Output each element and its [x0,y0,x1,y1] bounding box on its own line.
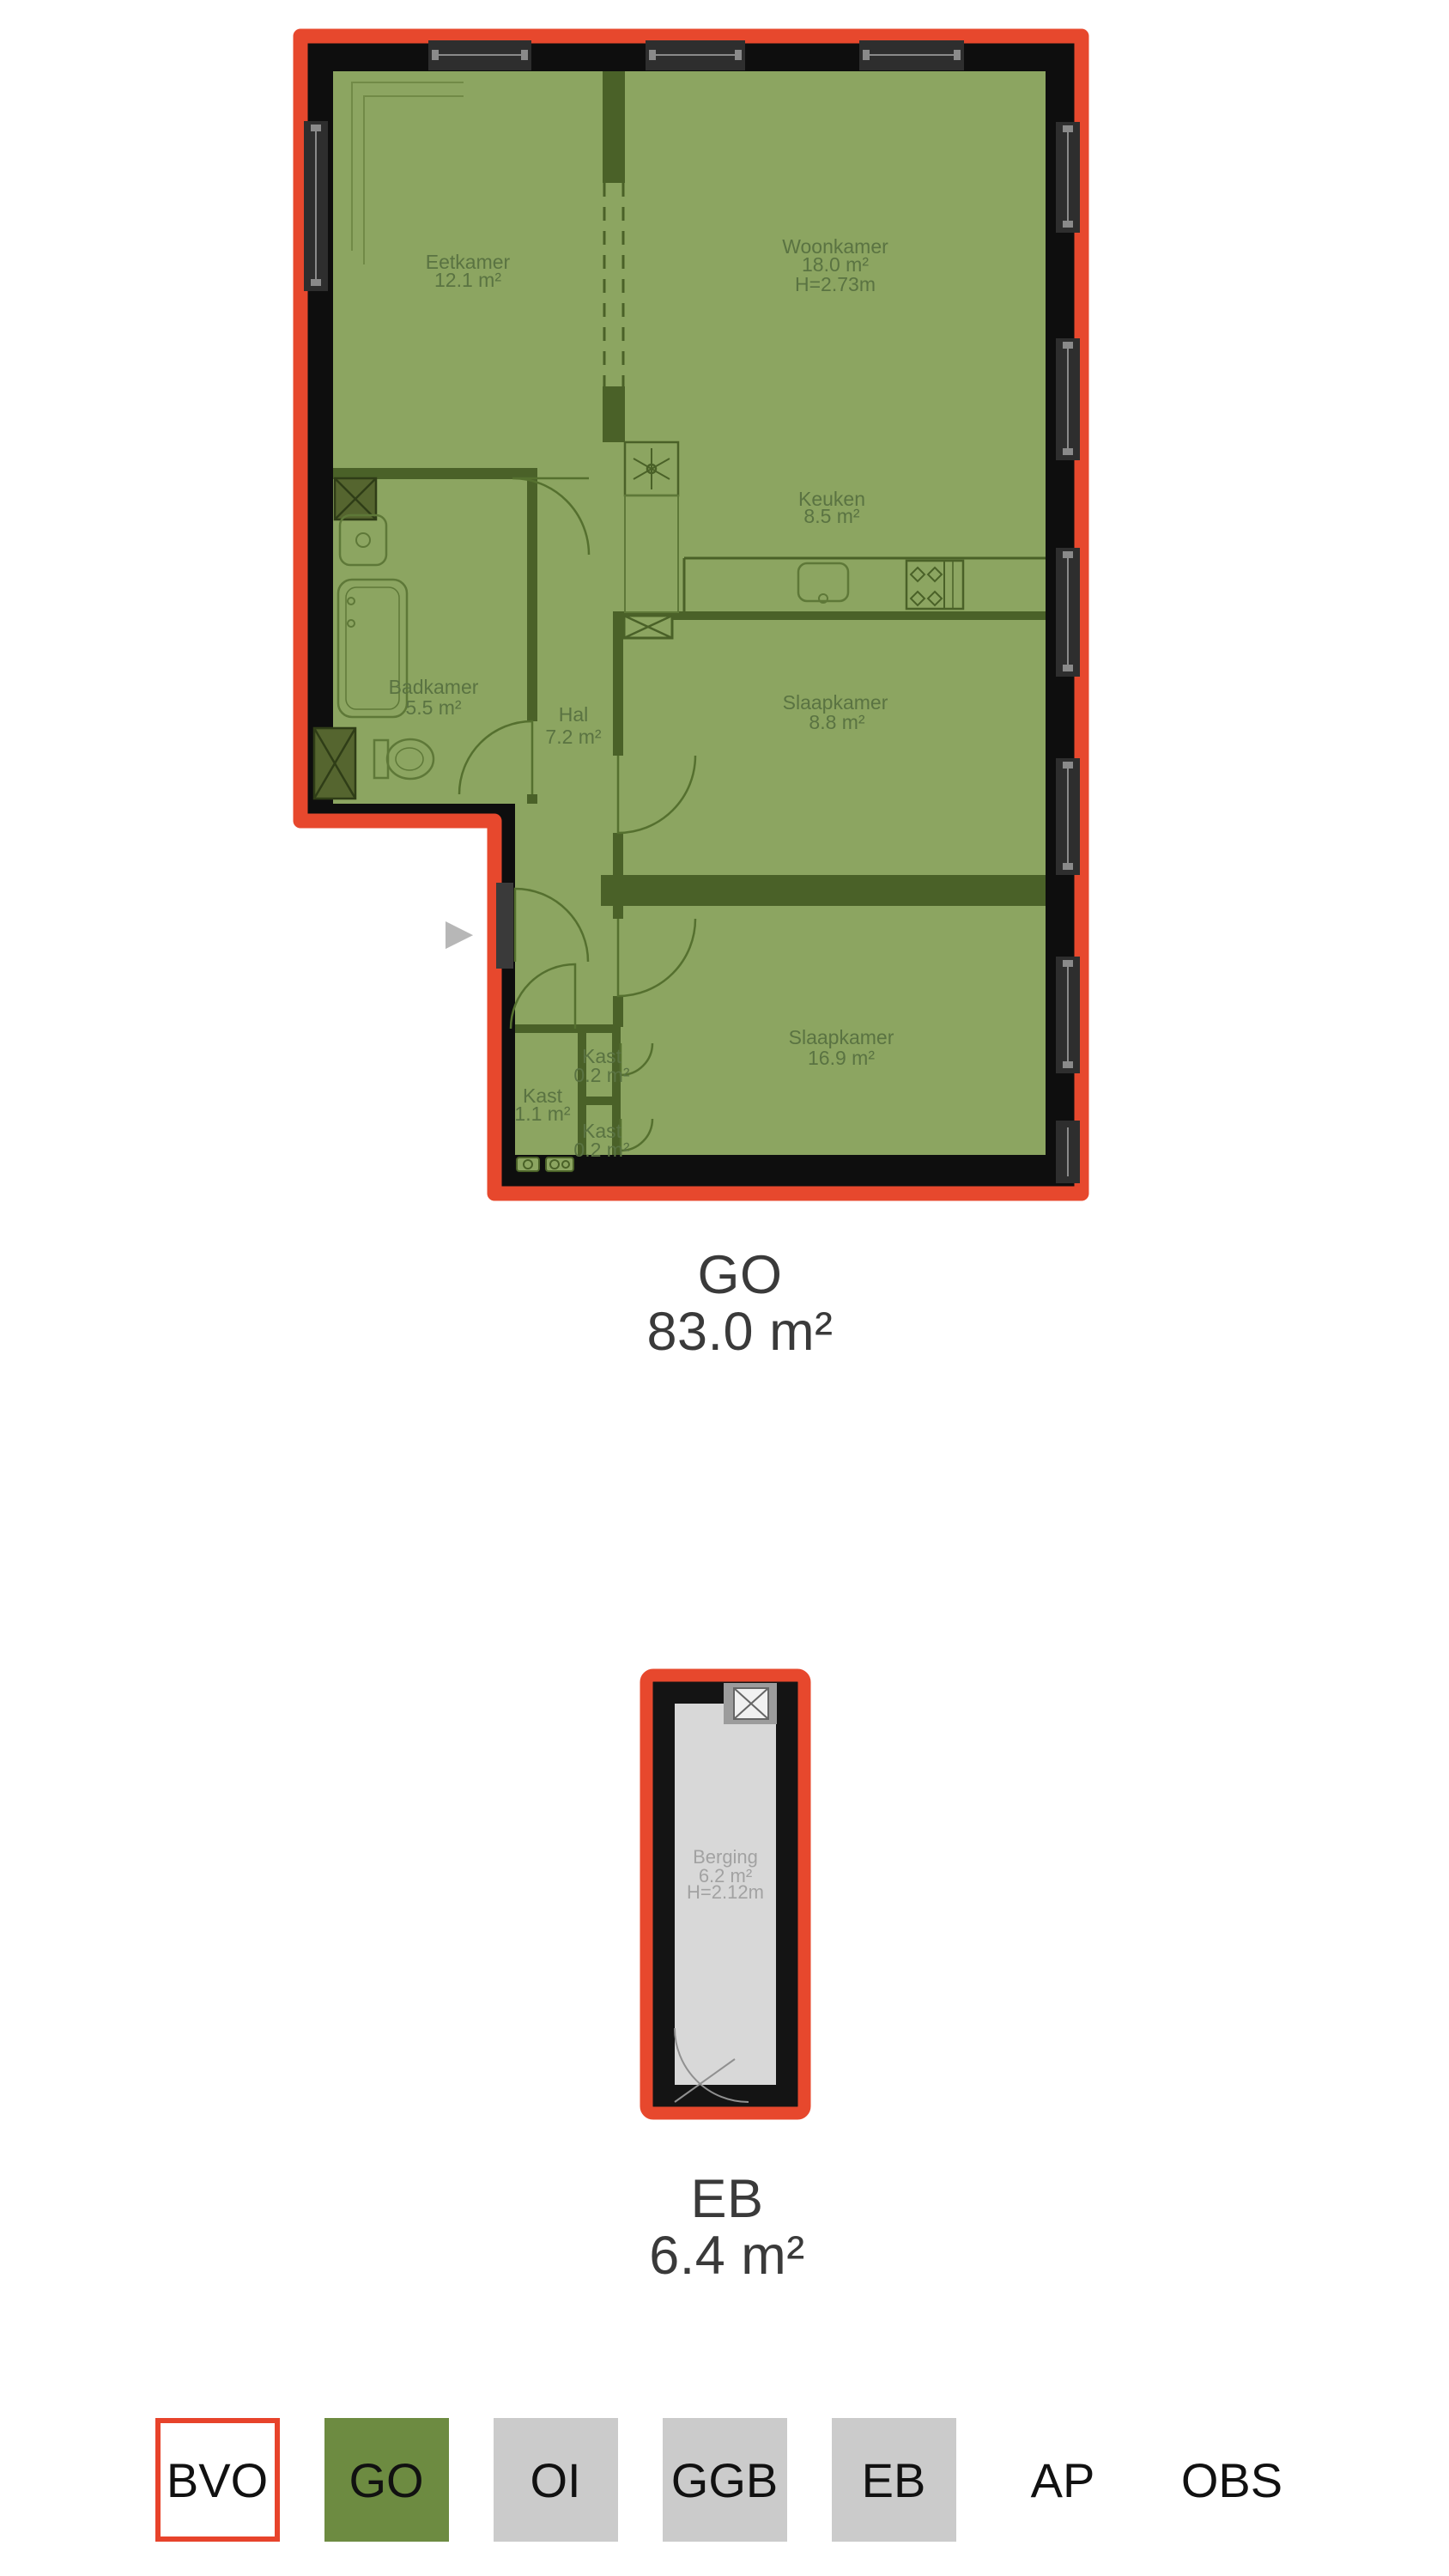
legend-item-oi[interactable]: OI [494,2418,618,2542]
shaft-keuken-icon [624,616,672,638]
caption-go: GO 83.0 m² [15,1247,1449,1360]
room-area-kast1: 1.1 m² [514,1103,571,1125]
room-area-slaapkamer1: 8.8 m² [809,711,865,733]
legend-item-obs[interactable]: OBS [1170,2418,1294,2542]
legend-item-ggb[interactable]: GGB [663,2418,787,2542]
room-label-slaapkamer2: Slaapkamer [789,1026,894,1048]
caption-go-code: GO [15,1247,1449,1303]
legend-bar: BVO GO OI GGB EB AP OBS [0,2418,1449,2542]
floorplan-go: Eetkamer 12.1 m² Woonkamer 18.0 m² H=2.7… [300,36,1082,1194]
caption-eb-code: EB [3,2171,1449,2227]
floorplans-canvas: Eetkamer 12.1 m² Woonkamer 18.0 m² H=2.7… [0,0,1449,2147]
room-label-hal: Hal [559,703,589,726]
room-area-slaapkamer2: 16.9 m² [808,1047,875,1069]
room-area-hal: 7.2 m² [545,726,602,748]
legend-item-go[interactable]: GO [324,2418,449,2542]
shaft-eetkamer-icon [335,478,376,519]
caption-go-area: 83.0 m² [15,1303,1449,1360]
legend-item-bvo[interactable]: BVO [155,2418,280,2542]
legend-item-eb[interactable]: EB [832,2418,956,2542]
carousel-next-button[interactable]: ▶ [433,907,485,958]
shaft-badkamer-icon [314,728,355,799]
room-area-kast3: 0.2 m² [573,1139,630,1161]
room-area-eetkamer: 12.1 m² [434,269,501,291]
room-area-keuken: 8.5 m² [803,505,860,527]
room-area-kast2: 0.2 m² [573,1064,630,1086]
room-height-woonkamer: H=2.73m [795,273,876,295]
room-area-badkamer: 5.5 m² [405,696,462,719]
front-door-leaf [496,883,513,969]
caption-eb-area: 6.4 m² [3,2227,1449,2284]
caption-eb: EB 6.4 m² [3,2171,1449,2284]
floorplan-report-page: { "carousel": { "next_icon": "▶" }, "fig… [0,0,1449,2576]
play-arrow-icon: ▶ [446,912,473,952]
room-label-badkamer: Badkamer [389,676,479,698]
eb-shaft-icon [724,1683,777,1724]
legend-item-ap[interactable]: AP [1001,2418,1125,2542]
floorplan-eb: Berging 6.2 m² H=2.12m [646,1675,804,2113]
room-height-berging: H=2.12m [687,1881,764,1903]
